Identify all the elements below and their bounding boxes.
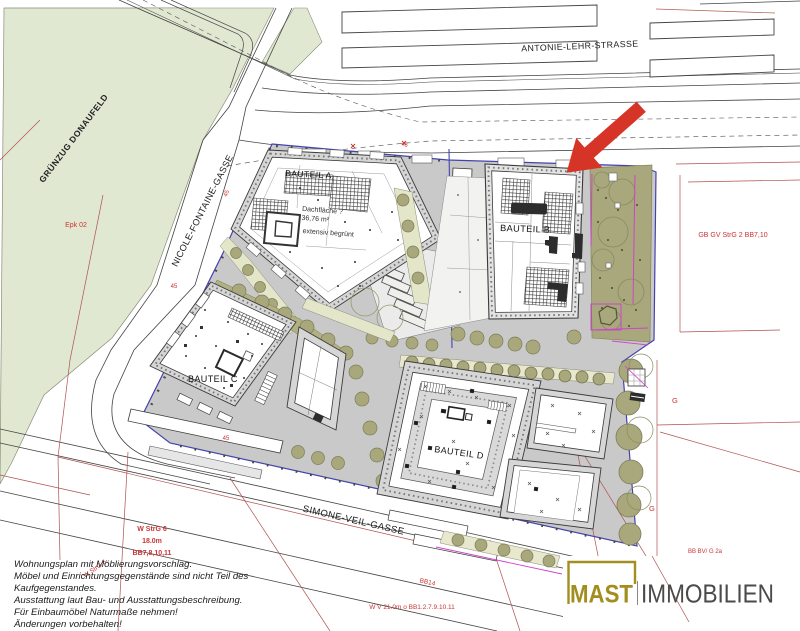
svg-text:BB BV/ G 2a: BB BV/ G 2a bbox=[688, 549, 723, 555]
svg-text:Kaufgegenstandes.: Kaufgegenstandes. bbox=[14, 583, 97, 594]
svg-text:IMMOBILIEN: IMMOBILIEN bbox=[641, 579, 774, 609]
svg-text:BAUTEIL C: BAUTEIL C bbox=[188, 374, 238, 384]
svg-text:Änderungen vorbehalten!: Änderungen vorbehalten! bbox=[13, 619, 122, 630]
svg-text:Ausstattung laut Bau- und Auss: Ausstattung laut Bau- und Ausstattungsbe… bbox=[13, 595, 242, 606]
svg-text:W StrG 6: W StrG 6 bbox=[137, 526, 167, 533]
svg-text:BB7,8,10,11: BB7,8,10,11 bbox=[133, 550, 172, 557]
svg-text:G: G bbox=[649, 504, 655, 513]
svg-text:Möbel und Einrichtungsgegenstä: Möbel und Einrichtungsgegenstände sind n… bbox=[14, 571, 249, 582]
svg-text:45: 45 bbox=[171, 284, 178, 290]
svg-text:BAUTEIL B: BAUTEIL B bbox=[500, 223, 551, 235]
svg-text:W V 21.0m o BB1.2.7.9.10.11: W V 21.0m o BB1.2.7.9.10.11 bbox=[369, 604, 455, 611]
svg-text:MAST: MAST bbox=[570, 581, 633, 609]
svg-text:Epk 02: Epk 02 bbox=[65, 222, 87, 229]
svg-text:GB GV StrG 2 BB7,10: GB GV StrG 2 BB7,10 bbox=[698, 232, 767, 239]
svg-text:18.0m: 18.0m bbox=[142, 538, 162, 545]
svg-text:45: 45 bbox=[223, 436, 230, 442]
svg-text:G: G bbox=[672, 396, 678, 405]
svg-text:Wohnungsplan mit Möblierungsvo: Wohnungsplan mit Möblierungsvorschlag. bbox=[14, 559, 192, 570]
svg-text:Für Einbaumöbel Naturmaße nehm: Für Einbaumöbel Naturmaße nehmen! bbox=[14, 607, 178, 618]
